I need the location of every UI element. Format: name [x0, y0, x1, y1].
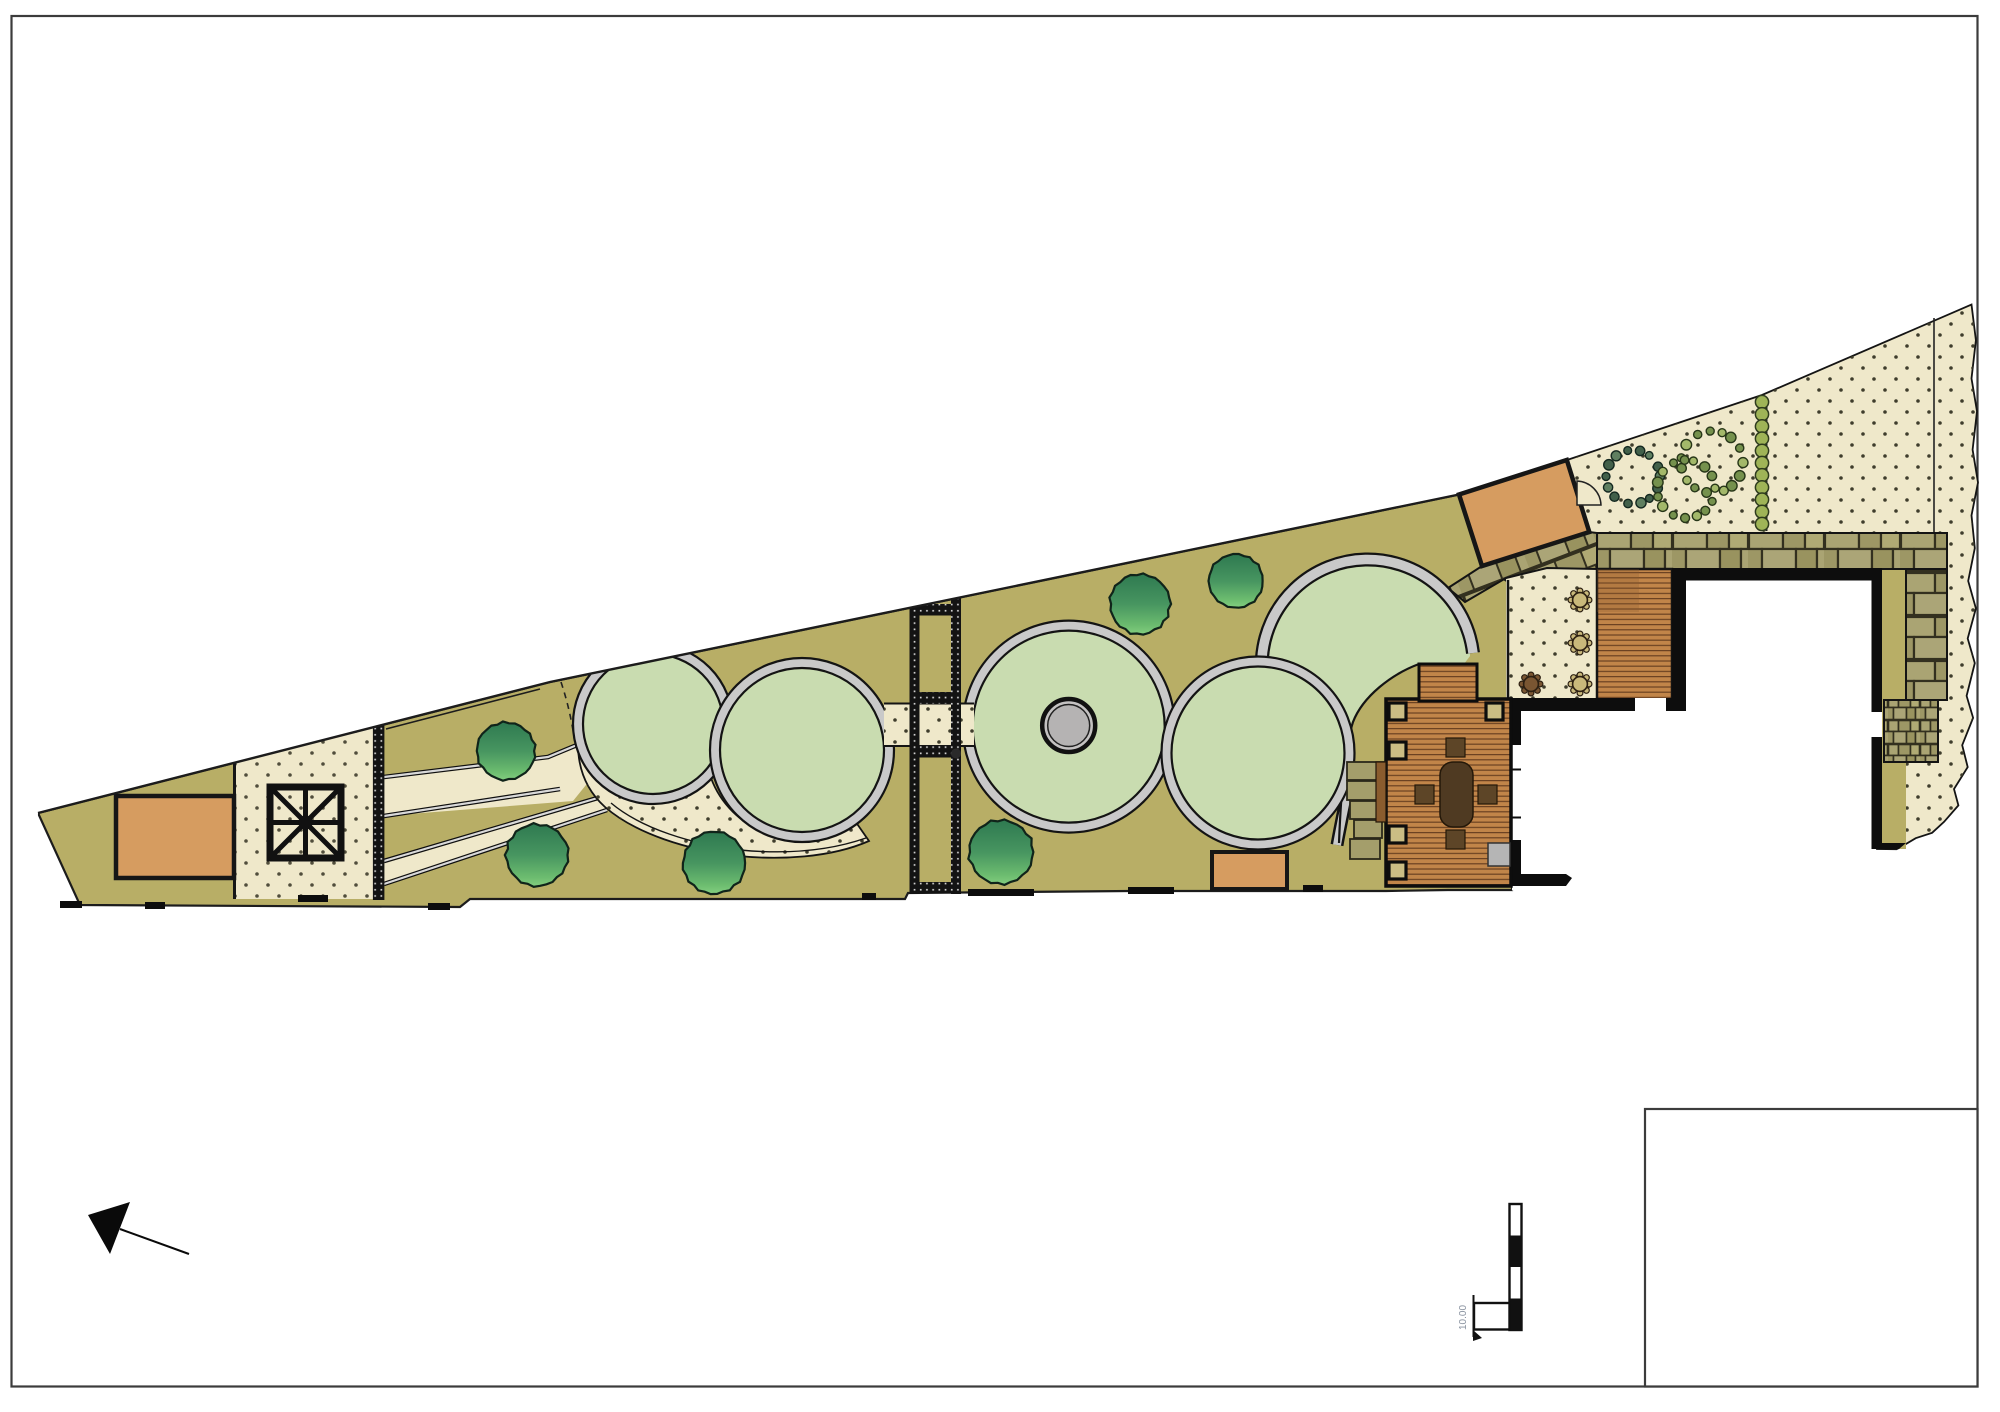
svg-text:10.00: 10.00 — [1458, 1305, 1469, 1330]
